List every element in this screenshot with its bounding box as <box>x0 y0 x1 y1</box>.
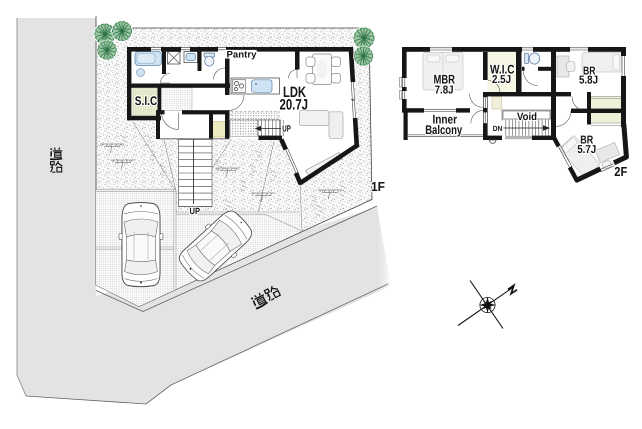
svg-text:1F: 1F <box>371 179 385 194</box>
svg-text:5.7J: 5.7J <box>577 144 596 156</box>
svg-text:7.8J: 7.8J <box>435 84 454 96</box>
svg-text:S.I.C: S.I.C <box>135 94 158 108</box>
svg-text:20.7J: 20.7J <box>280 96 309 113</box>
svg-text:2F: 2F <box>614 164 627 179</box>
svg-text:UP: UP <box>190 206 201 216</box>
svg-text:UP: UP <box>282 124 291 134</box>
svg-text:Pantry: Pantry <box>227 49 258 60</box>
svg-text:5.8J: 5.8J <box>579 74 598 86</box>
svg-text:2.5J: 2.5J <box>492 74 511 86</box>
svg-text:Balcony: Balcony <box>425 123 462 137</box>
svg-text:Void: Void <box>517 111 537 123</box>
svg-text:DN: DN <box>493 124 503 133</box>
